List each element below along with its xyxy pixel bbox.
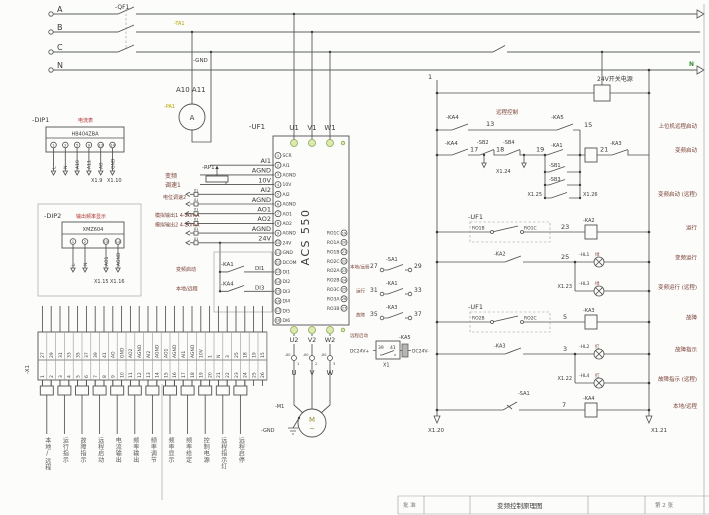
strip-terminal-number: 13 [146,372,152,378]
analog-wire-label: AGND [252,167,271,175]
strip-wire-label: AO1 [163,348,169,358]
drive-pin-number: 9 [277,231,279,235]
strip-pair-link [76,380,89,434]
motor-ref: -M1 [275,404,284,410]
drive-pin: 5 AI2 [275,191,290,198]
x1-tag: X1 [194,188,199,192]
phase-c-label: C [57,43,63,52]
drive-pin-name: AGND [283,202,297,208]
strip-terminal-number: 15 [163,372,169,378]
fb4-wire-a: 39 [378,345,384,351]
schematic-drawing: A B C N -QF1 -TA1 -GND A10 A11 -PA1 A -D… [0,0,709,515]
strip-pair-link [40,380,53,434]
drive-pin: 12 DCOM [275,259,297,266]
strip-cell: 27 1 [38,306,47,386]
drive-pin-name: RO3A [327,296,341,302]
strip-terminal-number: 1 [40,375,46,378]
analog-wire-label: 10V [258,176,271,184]
strip-pair-link [93,380,106,434]
strip-cell: 1 20 [205,306,214,386]
l4-ka2: -KA2 [494,252,506,258]
gnd-label: -GND [193,58,208,64]
drive-pin-name: RO3B [327,306,340,312]
strip-terminal-number: 16 [172,372,178,378]
l6-wire: 3 [563,345,567,353]
drive-pin: 6 AGND [275,201,296,208]
phase-n-terminal [49,68,53,72]
l5-ro2c: RO2C [524,316,537,322]
fb2-wire-b: 33 [414,287,422,294]
analog-section: -RP1 变频 调速1 电位调速2 模拟输出1 4-20mA 模拟输出2 4-2… [155,157,272,243]
drive-pin-number: 3 [277,173,279,177]
strip-terminal-number: 12 [137,372,143,378]
drive-pin-number: 25 [342,288,346,292]
dip1-pins: 1 L 2 N 5 A10 9 A11 [51,142,117,175]
l6-x122: X1.22 [557,376,572,382]
di3-label: DI3 [255,286,265,292]
strip-function-label: 频率输出 [131,437,139,463]
strip-cell: AO1 15 [161,306,170,386]
drive-pin-name: 10V [283,182,293,188]
drive-pin: 11 GND [275,250,293,257]
motor-m: M [309,416,315,424]
ammeter-ref-label: -PA1 [164,104,175,110]
strip-cell: 29 2 [47,306,56,386]
drive-pin-name: DI5 [283,308,291,314]
drive-ref: -UF1 [249,123,265,131]
dip1-pin: 2 N [63,142,70,175]
l7-function: 本地/远程 [673,402,697,410]
analog-wire-label: AO1 [257,206,271,214]
fb4-function: 远程启动 [350,332,368,339]
drive-pin-name: GND [283,250,294,256]
drive-pin: 17 DI5 [275,308,290,315]
strip-pair-link [146,380,159,434]
strip-wire-label: 41 [102,352,108,358]
motor-section: -X0 -X0 -X0 1 2 3 U V W -M1 M ~ -GND [261,353,335,437]
l6-lamp2: -HL4 [579,373,590,379]
drive-pin-number: 12 [276,261,280,265]
drive-pin-name: AI1 [283,163,290,169]
fb3-device: -KA3 [386,305,398,311]
strip-wire-label: AO [111,351,117,358]
l4-wire: 25 [561,253,569,261]
strip-function-label: 频率调节 [148,437,156,463]
dip1-wire-label: A10 [75,160,81,169]
l2-ka1-contact: -KA1 [551,143,563,149]
strip-wire-label: 18 [243,352,249,358]
strip-cell: N 21 [214,306,223,386]
drive-pin: 16 DI4 [275,298,290,305]
dip1-pin-number: 13 [98,143,103,148]
breaker-label: -QF1 [115,4,130,11]
motor-ac: ~ [309,425,315,433]
titleblock-approve: 批 准 [403,501,416,509]
x1-tag: X1 [194,227,199,231]
drive-pin: RO3A 26 [327,296,347,303]
strip-wire-label: AI1 [181,351,187,358]
strip-pair-link [128,380,141,434]
drive-v2: V2 [308,336,317,344]
l5-wire: 5 [563,313,567,321]
strip-cell: 18 24 [240,306,249,386]
dip2-ref: -DIP2 [44,212,61,220]
drawing-title: 变频控制原理图 [497,501,543,510]
motor-gnd-label: -GND [261,428,275,434]
strip-terminal-number: 22 [225,372,231,378]
l2-w21: 21 [600,146,608,154]
dip2-block: -DIP2 输出频率显示 XMZ604 1 2 15 14 L N AO1 AG… [38,204,141,296]
drive-pin-number: 7 [277,212,279,216]
strip-wire-label: AI2 [146,351,152,358]
strip-cell: AI2 13 [144,306,153,386]
l1-function: 上位机远程启动 [658,122,697,130]
drive-pin-number: 17 [276,309,280,313]
fb2-function: 运行 [356,288,365,295]
x1-tag: X1 [194,208,199,212]
l5-coil-label: -KA3 [583,308,595,314]
strip-terminal-number: 14 [155,372,161,378]
l7-sa1: -SA1 [518,391,530,397]
strip-cell: AI1 17 [179,306,188,386]
strip-wire-label: 1 [207,355,213,358]
strip-cell: AGND 18 [188,306,197,386]
dip1-pin-number: 14 [110,143,115,148]
l4-lamp2-color: 绿 [595,280,600,287]
ammeter-letter: A [190,114,195,122]
strip-cell: 35 5 [73,306,82,386]
l4-lamp-color: 绿 [595,251,600,258]
ka1-contact-label: -KA1 [221,262,234,268]
drive-pin: 9 AGND [275,230,296,237]
dip1-block: -DIP1 电流表 HB404ZBA 1 L 2 N 5 [32,116,124,184]
x121-label: X1.21 [651,428,667,434]
strip-pair-link [199,380,212,434]
l6-function: 故障指示 [675,346,698,354]
l1-wire: 13 [486,120,494,128]
fb4-minus: DC24V- [412,349,429,355]
l6-lamp2-color: 红 [595,372,600,379]
drive-pin-number: 16 [276,299,280,303]
strip-wire-label: 10V [199,348,205,358]
l3-wire: 23 [561,223,569,231]
sb1-label: -SB1 [549,163,561,169]
strip-terminal-number: 25 [251,372,257,378]
strip-pair-link [216,380,229,434]
drive-pin-name: SCR [283,153,292,159]
psu-label: 24V开关电源 [597,75,633,83]
strip-function-label: 远程启动 [96,437,104,463]
strip-terminal-number: 10 [119,372,125,378]
phase-n-label: N [57,61,63,70]
fb4-wire-b: 41 [390,345,396,351]
drive-pin: RO1A 20 [327,239,347,246]
strip-function-label: 电流输出 [113,437,121,463]
drive-pin-number: 5 [277,193,279,197]
phase-c-terminal [49,50,53,54]
strip-terminal-number: 18 [190,372,196,378]
drive-pin: RO2B 24 [327,277,347,284]
strip-cell: 3 22 [223,306,232,386]
analog-wire-label: AGND [252,196,271,204]
x120-label: X1.20 [428,428,445,434]
l2-ka4: -KA4 [445,141,458,147]
drive-pin: 1 SCR [275,153,292,160]
strip-terminal-number: 7 [93,375,99,378]
dip1-xref-2: X1.10 [107,178,122,184]
l2-sb4: -SB4 [503,140,515,146]
title-block: 批 准 变频控制原理图 第 2 张 [403,501,673,510]
strip-pair-link [58,380,71,434]
strip-function-label: 控制电源 [201,437,209,463]
ammeter-wires-label: A10 A11 [176,86,206,94]
drive-pin-name: RO3C [327,287,340,293]
sb3-label: -SB3 [549,177,561,183]
l3-function: 运行 [686,224,698,232]
drive-pin: 15 DI3 [275,288,290,295]
fb1-wire-b: 29 [414,263,422,270]
ladder-section: 1 24V开关电源 N -KA4 13 远程控制 -KA5 15 上位机远程启动… [428,61,697,434]
drive-model: ACS 550 [299,209,312,266]
l5-function: 故障 [686,314,698,322]
strip-wire-label: 31 [58,352,64,358]
x1-tag: X1 [194,237,199,241]
dip1-wire-label: A11 [87,160,93,169]
drive-pins-right: RO1C 19 RO1A 20 RO1B 21 RO2C 22 RO2A 23 [327,230,347,312]
drive-pin: 18 DI6 [275,317,290,324]
strip-terminal-number: 23 [234,372,240,378]
drive-pin-number: 2 [277,164,279,168]
drive-pin-name: RO1A [327,240,341,246]
drive-pin-number: 27 [342,307,346,311]
power-section: A B C N -QF1 -TA1 -GND A10 A11 -PA1 A [49,4,208,130]
l6-lamp: -HL2 [579,344,590,350]
motor-v: V [310,369,315,377]
drive-pin-name: RO2B [327,278,340,284]
strip-wire-label: N [216,355,222,358]
strip-pair-link [181,380,194,434]
strip-terminal-number: 5 [75,375,81,378]
strip-cell: AO2 11 [126,306,135,386]
drive-pin-number: 18 [276,319,280,323]
dip2-wire-label: L [71,263,77,266]
strip-function-label: 频率给定 [184,437,192,463]
strip-cell: GND 10 [117,306,126,386]
strip-cell: AGND 14 [152,306,161,386]
drive-pin: RO1C 19 [327,230,347,237]
drive-w1: W1 [324,124,335,132]
strip-terminal-number: 24 [243,372,249,378]
drive-pin-number: 19 [342,231,346,235]
l3-ro1c: RO1C [524,226,537,232]
drive-pin-name: DCOM [283,260,297,266]
analog-wire-labels: AI1AGND10VAI2AGNDAO1AO2AGND24V [252,157,272,243]
dip2-xref-2: X1.16 [110,279,125,285]
l2-function: 变频启动 [675,146,698,154]
drive-pin-name: RO2C [327,259,340,265]
x125-label: X1.25 [527,192,542,198]
drive-pin: 8 AO2 [275,220,292,227]
l4-x123: X1.23 [557,284,572,290]
l1-remote-ctrl: 远程控制 [496,108,519,116]
l6-ka3: -KA3 [494,344,506,350]
strip-terminal-number: 11 [128,372,134,378]
drive-pin-number: 1 [277,154,279,158]
l1-ka5: -KA5 [551,115,564,121]
strip-terminal-number: 4 [67,375,73,378]
local-remote-label: 本地/远程 [176,286,198,293]
dip2-title: 输出频率显示 [76,213,106,220]
strip-cell: 15 26 [258,306,267,386]
potentiometer [206,176,228,182]
x0-num: 2 [315,362,317,366]
l2-sb2: -SB2 [477,140,489,146]
l4-function: 变频运行 [675,254,698,262]
digital-section: -KA1 DI1 -KA4 DI3 变频启动 本地/远程 [176,252,272,312]
drive-pin-number: 14 [276,280,281,284]
l7-wire: 7 [562,401,566,409]
drive-pin-name: RO1C [327,231,340,237]
phase-b-label: B [57,23,63,32]
l5-ro2b: RO2B [472,316,485,322]
phase-a-label: A [57,5,63,14]
drive-u2: U2 [290,336,299,344]
strip-pair-link [234,380,247,434]
drive-pin: 7 AO1 [275,211,292,218]
drive-pin-number: 22 [342,260,346,264]
vf-label: 变频 [165,172,177,180]
strip-cells: 27 1 29 2 31 3 33 4 35 5 [38,306,267,386]
l4-function-remote: 变频运行 (远程) [658,283,697,291]
drive-pin-number: 13 [276,270,280,274]
drive-pin-number: 15 [276,290,280,294]
drive-v1: V1 [307,124,316,132]
strip-function-label: 故障指示 [78,437,86,463]
l3-ro1b: RO1B [472,226,485,232]
strip-wire-label: 33 [67,352,73,358]
fb3-wire-b: 37 [414,311,422,318]
ka4-contact-label: -KA4 [221,282,234,288]
strip-wire-label: 37 [84,352,90,358]
strip-wire-label: 39 [93,352,99,358]
analog-wire-label: AI2 [261,186,272,194]
drive-pin-name: DI1 [283,270,291,276]
drive-pin-number: 24 [342,278,347,282]
dip2-pin-number: 14 [116,239,121,244]
strip-terminal-number: 6 [84,375,90,378]
dip2-wire-label: AO1 [104,256,110,266]
l2-w19: 19 [536,146,544,154]
dip1-pin: 5 A10 [74,142,81,175]
l3-coil-label: -KA2 [583,218,595,224]
drive-pin: RO3B 27 [327,305,347,312]
strip-wire-label: 25 [234,352,240,358]
drive-pin: 3 AGND [275,172,296,179]
dip1-wire-label: GND [110,158,116,169]
l2-w18: 18 [496,146,504,154]
drive-pin-name: AGND [283,231,297,237]
fb2-device: -KA1 [386,281,398,287]
sheet-number: 第 2 张 [655,501,673,509]
x1-tag: X1 [194,198,199,202]
fb1-wire-a: 27 [370,263,378,270]
strip-cell: 39 7 [91,306,100,386]
dip2-xref-1: X1.15 [94,279,109,285]
strip-cell: 33 4 [64,306,73,386]
drive-pin-number: 10 [276,241,280,245]
drive-pin-name: DI2 [283,279,291,285]
drive-pin-name: RO1B [327,249,340,255]
strip-wire-label: GND [119,347,125,358]
strip-function-label: 运行指示 [60,437,68,463]
motor-u: U [291,369,296,377]
pot-speed-label: 电位调速2 [163,194,186,201]
strip-terminal-number: 2 [49,375,55,378]
fb2-wire-a: 31 [370,287,378,294]
fb1-function: 本地/远程 [350,264,370,271]
strip-wire-label: 35 [75,352,81,358]
fb4-x1: X1 [383,363,390,369]
drive-pin-number: 6 [277,202,279,206]
dip1-pin: 9 A11 [86,142,93,175]
drive-pin: RO2A 23 [327,268,347,275]
strip-terminal-number: 9 [111,375,117,378]
drive-pin-number: 8 [277,222,279,226]
strip-pair-link [111,380,124,434]
x0-num: 1 [297,362,299,366]
drive-pin-number: 20 [342,241,346,245]
strip-terminal-number: 19 [199,372,205,378]
x1-tag: X1 [194,217,199,221]
l7-coil-label: -KA4 [583,396,595,402]
l5-uf1: -UF1 [468,303,483,311]
strip-wire-label: AGND [172,344,178,358]
l2-w17: 17 [470,146,478,154]
fb1-device: -SA1 [386,257,398,263]
dip1-model: HB404ZBA [71,132,99,138]
vfd-start-label: 变频启动 [176,266,196,273]
drive-pin-name: DI6 [283,318,291,324]
dip1-wire-label: L [51,166,57,169]
l2-function-remote: 变频启动 (远程) [658,190,697,198]
strip-terminal-number: 26 [260,372,266,378]
drive-pin: 4 10V [275,182,292,189]
strip-ref: -X1 [25,365,31,374]
strip-function-label: 本地/远程 [43,437,51,471]
l6-function-remote: 故障指示 (远程) [658,375,697,383]
x0-num: 3 [333,362,335,366]
dip2-pin-number: 15 [104,239,109,244]
terminal-strip: -X1 27 1 29 2 31 3 33 [25,306,267,434]
strip-function-label: 远程指示灯 [219,437,227,470]
fb3-wire-a: 35 [370,311,378,318]
fb4-plus: DC24V+ [350,349,369,355]
drive-pin: 13 DI1 [275,269,290,276]
strip-pair-links [40,380,247,434]
strip-cell: 19 25 [249,306,258,386]
strip-terminal-number: 8 [102,375,108,378]
analog-wire-label: AO2 [257,215,271,223]
drive-pin-name: DI4 [283,299,291,305]
strip-wire-label: 3 [225,355,231,358]
strip-function-label: 频率显示 [166,437,174,463]
drive-pin-name: RO2A [327,268,341,274]
dip1-pin: 13 AO [98,142,105,175]
drive-pin-number: 11 [276,251,280,255]
fb4-device: -KA5 [399,335,411,341]
dip2-model: XMZ604 [83,227,104,233]
drive-pin-number: 26 [342,297,346,301]
